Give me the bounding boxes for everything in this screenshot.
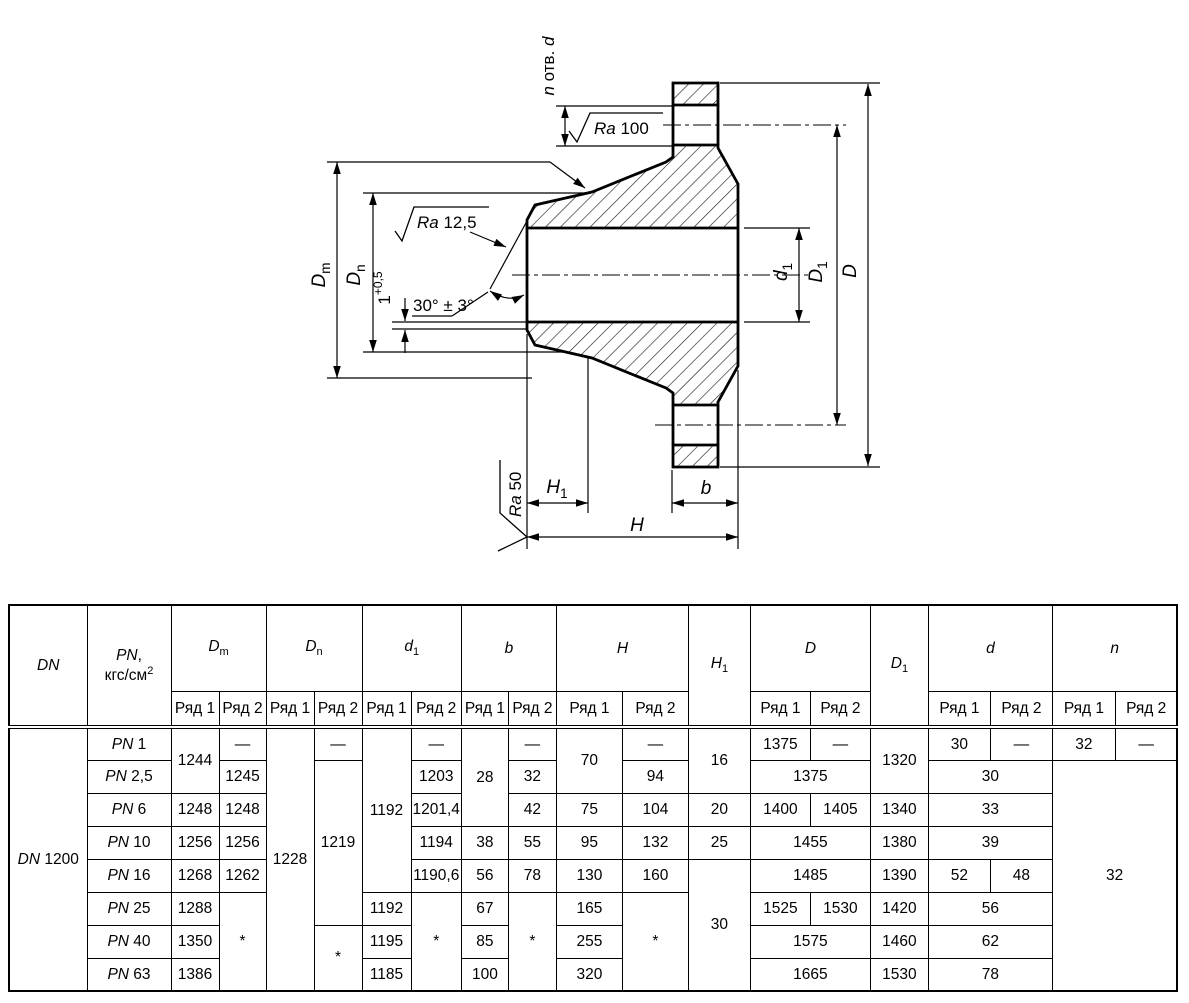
cell: 30 — [928, 760, 1052, 793]
label-land: 1+0,5 — [371, 271, 394, 305]
cell: 1190,6 — [411, 859, 461, 892]
cell: PN 25 — [87, 892, 171, 925]
header-cell: Dn — [266, 605, 362, 692]
header-cell: Ряд 2 — [219, 692, 266, 728]
header-cell: b — [461, 605, 556, 692]
label-b: b — [701, 478, 712, 499]
cell: 55 — [508, 826, 556, 859]
cell: 104 — [622, 793, 688, 826]
cell: 1530 — [870, 958, 928, 991]
cell: 1386 — [171, 958, 219, 991]
extension-lines — [327, 83, 880, 549]
cell: 78 — [928, 958, 1052, 991]
cell: 1455 — [750, 826, 870, 859]
cell: 1219 — [314, 760, 362, 925]
cell: 1262 — [219, 859, 266, 892]
label-D: D — [840, 264, 861, 278]
cell: 16 — [688, 727, 750, 793]
cell: 38 — [461, 826, 508, 859]
cell: 165 — [556, 892, 622, 925]
cell: 320 — [556, 958, 622, 991]
cell: 1195 — [362, 925, 411, 958]
cell: * — [411, 892, 461, 991]
cell: 1248 — [219, 793, 266, 826]
cell: 1575 — [750, 925, 870, 958]
cone-leader-arrow — [550, 162, 585, 188]
cell: 1244 — [171, 727, 219, 793]
header-cell: Ряд 2 — [411, 692, 461, 728]
cell: 33 — [928, 793, 1052, 826]
cell: 32 — [508, 760, 556, 793]
cell: 1400 — [750, 793, 810, 826]
header-cell: Ряд 1 — [750, 692, 810, 728]
cell: — — [508, 727, 556, 760]
header-cell: Ряд 2 — [314, 692, 362, 728]
header-cell: Ряд 1 — [266, 692, 314, 728]
cell: 132 — [622, 826, 688, 859]
header-cell: H1 — [688, 605, 750, 727]
header-cell: D1 — [870, 605, 928, 727]
cell: 1350 — [171, 925, 219, 958]
header-cell: DN — [9, 605, 87, 727]
lower-rim-cap — [673, 445, 718, 467]
cell: 52 — [928, 859, 990, 892]
page: { "drawing": { "labels": { "n_holes": "*… — [0, 0, 1189, 1003]
cell: 42 — [508, 793, 556, 826]
cell: 30 — [928, 727, 990, 760]
header-cell: d — [928, 605, 1052, 692]
header-cell: Ряд 2 — [810, 692, 870, 728]
cell: 100 — [461, 958, 508, 991]
label-H1: H1 — [546, 477, 567, 501]
header-cell: Ряд 1 — [556, 692, 622, 728]
header-cell: Dm — [171, 605, 266, 692]
header-cell: Ряд 1 — [362, 692, 411, 728]
label-ra50: Ra 50 — [506, 472, 525, 517]
header-cell: Ряд 1 — [928, 692, 990, 728]
cell: 160 — [622, 859, 688, 892]
cell: 1340 — [870, 793, 928, 826]
cell: PN 40 — [87, 925, 171, 958]
cell: 1256 — [171, 826, 219, 859]
cell: 1248 — [171, 793, 219, 826]
label-n-holes-d: n отв. d — [539, 36, 558, 96]
label-D1: D1 — [806, 261, 830, 282]
cell: 255 — [556, 925, 622, 958]
cell: 56 — [928, 892, 1052, 925]
angle-arc-arrow — [490, 291, 524, 298]
flange-section-drawing: n отв. d Ra 100 Ra 12,5 Ra 50 30° ± 3° 1… — [0, 0, 1189, 600]
lower-hub-section — [527, 322, 738, 405]
label-ra100: Ra 100 — [594, 119, 649, 138]
cell: 130 — [556, 859, 622, 892]
header-cell: d1 — [362, 605, 461, 692]
cell: 1420 — [870, 892, 928, 925]
cell: 1530 — [810, 892, 870, 925]
cell: 1288 — [171, 892, 219, 925]
cell: 1185 — [362, 958, 411, 991]
drawing-labels: n отв. d Ra 100 Ra 12,5 Ra 50 30° ± 3° 1… — [309, 36, 861, 536]
upper-hub-section — [527, 145, 738, 228]
cell: 1380 — [870, 826, 928, 859]
dimension-table: DNPN,кгс/см2DmDnd1bHH1DD1dnРяд 1Ряд 2Ряд… — [8, 604, 1178, 992]
header-cell: Ряд 1 — [1052, 692, 1115, 728]
cell: 78 — [508, 859, 556, 892]
cell: 62 — [928, 925, 1052, 958]
cell: 1375 — [750, 727, 810, 760]
cell: 1194 — [411, 826, 461, 859]
header-cell: Ряд 2 — [990, 692, 1052, 728]
header-cell: Ряд 1 — [461, 692, 508, 728]
cell: 30 — [688, 859, 750, 991]
cell: 32 — [1052, 760, 1177, 991]
cell: 1192 — [362, 892, 411, 925]
cell: 1485 — [750, 859, 870, 892]
cell: 75 — [556, 793, 622, 826]
cell: 1460 — [870, 925, 928, 958]
header-cell: H — [556, 605, 688, 692]
cell: 1203 — [411, 760, 461, 793]
table-row: PN 6124812481201,44275104201400140513403… — [9, 793, 1177, 826]
cell: 95 — [556, 826, 622, 859]
cell: — — [411, 727, 461, 760]
cell: 94 — [622, 760, 688, 793]
cell: 39 — [928, 826, 1052, 859]
header-cell: Ряд 1 — [171, 692, 219, 728]
cell: * — [508, 892, 556, 991]
label-d1: d1 — [771, 263, 795, 281]
table-row: PN 63138611851003201665153078 — [9, 958, 1177, 991]
table-row: DN 1200PN 11244—1228—1192—28—70—161375—1… — [9, 727, 1177, 760]
label-Dm: Dm — [309, 263, 333, 288]
cell: 1665 — [750, 958, 870, 991]
cell: PN 1 — [87, 727, 171, 760]
cell: PN 10 — [87, 826, 171, 859]
cell: — — [1115, 727, 1177, 760]
cell: 67 — [461, 892, 508, 925]
cell: * — [622, 892, 688, 991]
cell: 1268 — [171, 859, 219, 892]
label-angle: 30° ± 3° — [413, 296, 474, 315]
header-cell: Ряд 2 — [1115, 692, 1177, 728]
cell: 1192 — [362, 727, 411, 892]
cell: 1256 — [219, 826, 266, 859]
cell: 1228 — [266, 727, 314, 991]
label-H: H — [630, 515, 644, 536]
table-row: PN 16126812621190,6567813016030148513905… — [9, 859, 1177, 892]
table-row: PN 10125612561194385595132251455138039 — [9, 826, 1177, 859]
cell: 56 — [461, 859, 508, 892]
cell: 20 — [688, 793, 750, 826]
header-cell: Ряд 2 — [508, 692, 556, 728]
header-cell: PN,кгс/см2 — [87, 605, 171, 727]
cell: * — [314, 925, 362, 991]
upper-rim-cap — [673, 83, 718, 105]
header-cell: n — [1052, 605, 1177, 692]
cell: 32 — [1052, 727, 1115, 760]
table-row: PN 401350*1195852551575146062 — [9, 925, 1177, 958]
cell: 70 — [556, 727, 622, 793]
cell: PN 63 — [87, 958, 171, 991]
cell: — — [810, 727, 870, 760]
cell: DN 1200 — [9, 727, 87, 991]
cell: — — [622, 727, 688, 760]
cell: 1201,4 — [411, 793, 461, 826]
label-Dn: Dn — [344, 264, 368, 285]
cell: PN 16 — [87, 859, 171, 892]
cell: * — [219, 892, 266, 991]
header-cell: Ряд 2 — [622, 692, 688, 728]
label-ra125: Ra 12,5 — [417, 213, 477, 232]
cell: 1375 — [750, 760, 870, 793]
cell: PN 6 — [87, 793, 171, 826]
cell: PN 2,5 — [87, 760, 171, 793]
cell: 25 — [688, 826, 750, 859]
cell: 48 — [990, 859, 1052, 892]
cell: 1390 — [870, 859, 928, 892]
cell: 85 — [461, 925, 508, 958]
ra125-leader-arrow — [470, 232, 506, 247]
header-cell: D — [750, 605, 870, 692]
dimension-table-wrapper: DNPN,кгс/см2DmDnd1bHH1DD1dnРяд 1Ряд 2Ряд… — [8, 604, 1178, 992]
cell: — — [219, 727, 266, 760]
cell: — — [314, 727, 362, 760]
cell: 1405 — [810, 793, 870, 826]
cell: 28 — [461, 727, 508, 826]
cell: 1245 — [219, 760, 266, 793]
cell: 1525 — [750, 892, 810, 925]
cell: — — [990, 727, 1052, 760]
cell: 1320 — [870, 727, 928, 793]
bevel-extension-line — [490, 221, 527, 289]
table-row: PN 251288*1192*67*165*15251530142056 — [9, 892, 1177, 925]
